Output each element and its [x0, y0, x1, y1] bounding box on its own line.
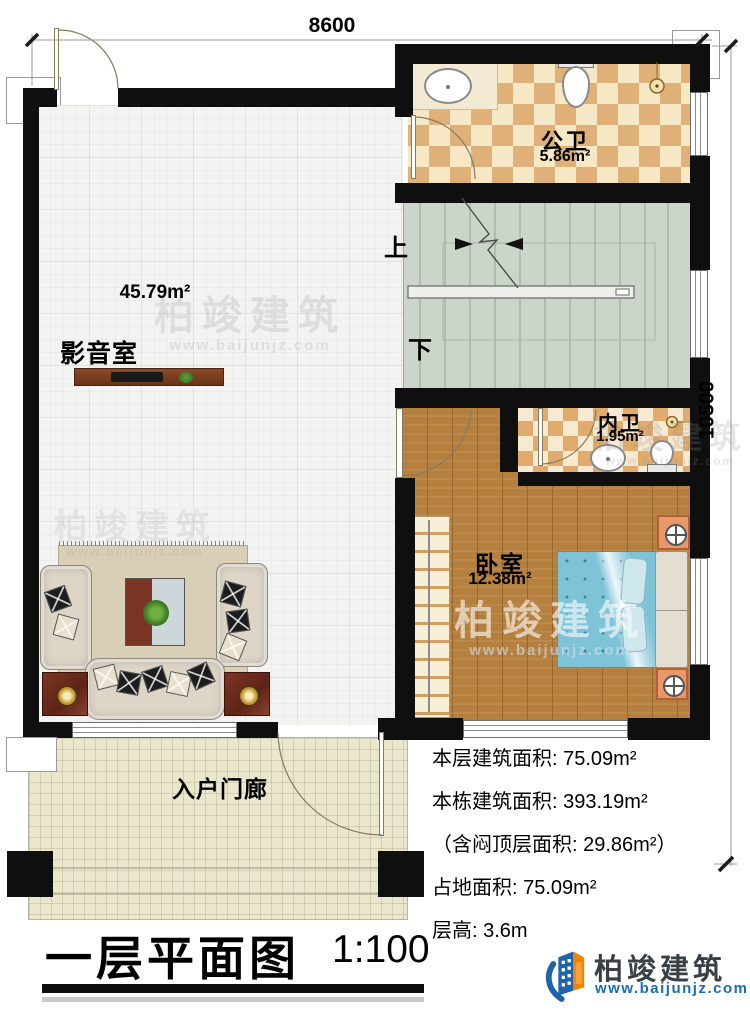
- sofa-pillow: [226, 609, 251, 634]
- window-public-bath: [690, 92, 708, 156]
- wall-segment: [237, 722, 278, 738]
- sink-inner: [590, 444, 626, 472]
- porch-floor: [28, 737, 408, 920]
- wall-segment: [395, 183, 710, 203]
- brand-logo-icon: [540, 944, 590, 1004]
- wall-segment: [500, 408, 518, 472]
- sink-drain: [446, 85, 450, 89]
- room-label-porch: 入户门廊: [160, 770, 280, 804]
- wall-segment: [518, 472, 710, 486]
- dimension-right-label: 10500: [696, 363, 722, 458]
- brand-url: www.baijunjz.com: [595, 980, 748, 997]
- tv-console: [74, 368, 224, 386]
- window-media-south: [72, 722, 237, 738]
- bed-pillow: [620, 605, 647, 653]
- plant-small: [179, 372, 193, 383]
- brand-logo: 柏竣建筑 www.baijunjz.com: [540, 944, 740, 1006]
- dimension-top-label: 8600: [300, 14, 364, 38]
- side-table-right: [224, 672, 270, 716]
- sink-public: [424, 68, 472, 104]
- speaker-top: [657, 515, 690, 550]
- door-leaf-bedroom: [396, 408, 403, 478]
- wall-segment: [378, 718, 463, 740]
- title-underline-light: [42, 997, 424, 1002]
- stat-footprint: 占地面积: 75.09m²: [432, 871, 676, 900]
- stairs-down-label: 下: [406, 330, 434, 365]
- area-label-media-room: 45.79m²: [110, 282, 200, 304]
- pilaster-outline-porch-left: [6, 737, 57, 772]
- wall-segment: [118, 88, 397, 107]
- coffee-table: [125, 578, 185, 646]
- side-table-left: [42, 672, 88, 716]
- plant: [143, 600, 169, 626]
- wall-segment: [690, 44, 710, 92]
- wardrobe-rod: [428, 520, 430, 712]
- stats-block: 本层建筑面积: 75.09m² 本栋建筑面积: 393.19m² （含闷顶层面积…: [432, 742, 676, 943]
- table-lamp: [239, 686, 259, 706]
- window-stairs: [690, 270, 708, 358]
- porch-column: [7, 851, 53, 897]
- speaker-bottom: [656, 668, 688, 700]
- bed-pillow: [620, 557, 648, 605]
- door-arc-entry: [59, 30, 118, 89]
- stat-total-area: 本栋建筑面积: 393.19m²: [432, 785, 676, 814]
- porch-column: [378, 851, 424, 897]
- bed-headboard: [655, 551, 688, 668]
- table-lamp: [57, 686, 77, 706]
- area-label-bedroom: 12.38m²: [450, 569, 550, 589]
- stat-floor-area: 本层建筑面积: 75.09m²: [432, 742, 676, 771]
- plan-title: 一层平面图: [45, 920, 300, 989]
- stat-height: 层高: 3.6m: [432, 914, 676, 943]
- tv: [111, 372, 163, 382]
- area-label-inner-bath: 1.95m²: [575, 428, 665, 445]
- door-leaf-public-bath: [411, 115, 416, 179]
- plan-scale: 1:100: [332, 928, 430, 972]
- window-bedroom-east: [690, 558, 708, 665]
- sofa-pillow: [116, 670, 141, 695]
- wall-segment: [395, 64, 413, 117]
- wall-segment: [23, 88, 39, 737]
- speaker-cone: [665, 524, 687, 546]
- door-leaf-inner-bath: [538, 408, 543, 466]
- stair-floor: [403, 203, 692, 390]
- sink-drain: [606, 457, 610, 461]
- wall-segment: [690, 156, 710, 270]
- wall-segment: [395, 388, 710, 408]
- door-leaf-porch: [379, 732, 384, 836]
- door-leaf-entry: [54, 28, 59, 90]
- stat-attic-area: （含闷顶层面积: 29.86m²）: [432, 828, 676, 857]
- wall-segment: [395, 478, 415, 740]
- rug-fringe-top: [59, 541, 247, 546]
- wall-segment: [628, 718, 710, 740]
- speaker-cone: [663, 675, 685, 697]
- stairs-up-label: 上: [382, 228, 410, 263]
- floor-plan: 柏竣建筑 www.baijunjz.com 柏竣建筑 www.baijunjz.…: [0, 0, 750, 1014]
- wall-segment: [30, 722, 72, 738]
- room-label-media-room: 影音室: [54, 334, 144, 370]
- wall-segment: [395, 44, 710, 64]
- window-bedroom-south: [463, 720, 628, 738]
- title-underline: [42, 984, 424, 993]
- area-label-public-bath: 5.86m²: [505, 148, 625, 166]
